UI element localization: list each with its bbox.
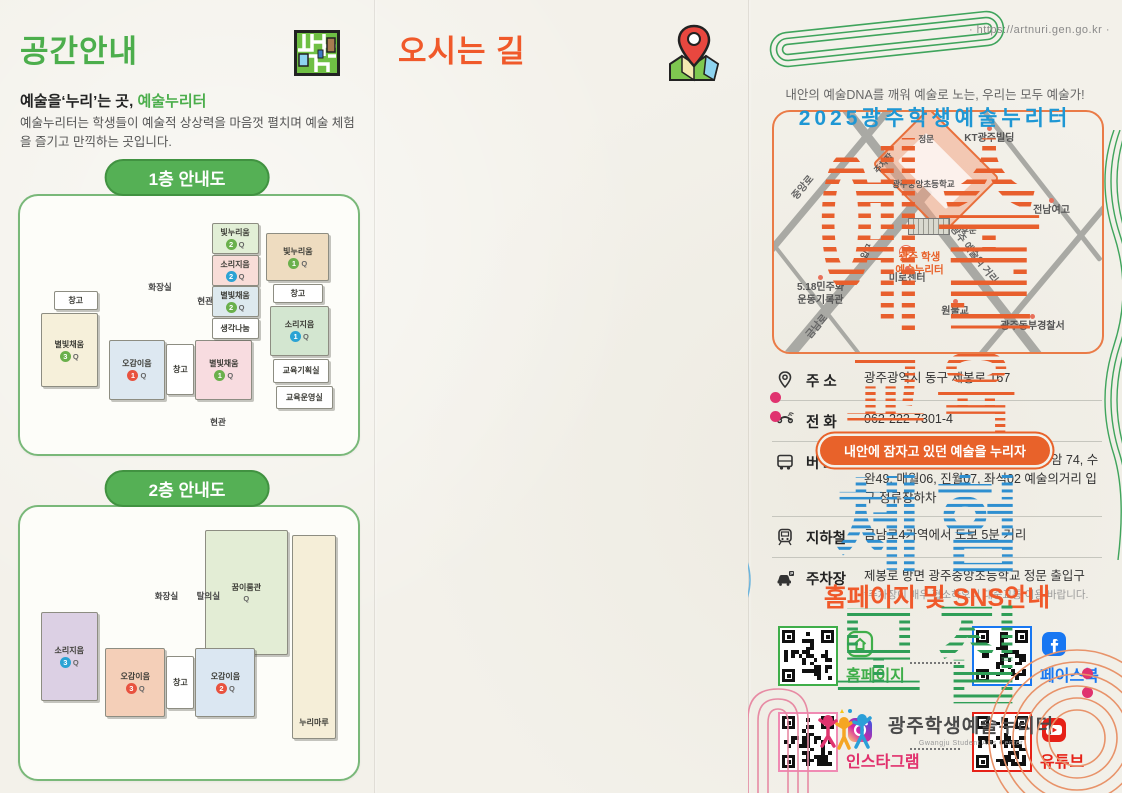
room-label: 현관 [210, 416, 226, 428]
decor-green-wave [1090, 130, 1122, 560]
magnifier-icon: Q [301, 259, 307, 268]
room-label: 창고 [173, 364, 188, 375]
magnifier-icon: Q [239, 240, 245, 249]
floor1-plan: 창고 별빛채움 3 Q 오감이음 1 Q [28, 204, 350, 446]
panel-space-guide: 공간안내 예술을‘누리’는 곳, 예술누리터 예술누리터는 학생들이 예술적 상… [0, 0, 374, 793]
floor-room: 화장실 [147, 587, 186, 605]
room-label: 창고 [68, 295, 83, 306]
directions-title: 오시는 길 [398, 26, 526, 71]
room-label: 꿈이룸관 [232, 582, 261, 593]
floor-room: 교육운영실 [276, 386, 333, 410]
room-label: 교육운영실 [286, 392, 323, 403]
floor-room: 오감이음 1 Q [109, 340, 166, 400]
room-label: 탈의실 [197, 590, 220, 602]
floor2-badge: 2층 안내도 [105, 470, 270, 507]
decor-pink-dots [770, 392, 782, 422]
room-meta: 2 Q [226, 239, 245, 250]
floor1-plan-card: 창고 별빛채움 3 Q 오감이음 1 Q [18, 194, 360, 456]
floor-room: 오감이음 3 Q [105, 648, 165, 717]
panel-directions: 오시는 길 KT광주빌딩 [374, 0, 748, 793]
room-number-badge: 1 [127, 370, 138, 381]
cover-ribbon: 내안에 잠자고 있던 예술을 누리자 [820, 436, 1050, 465]
decor-pink-arches [748, 653, 844, 793]
room-meta: 3 Q [60, 351, 79, 362]
room-label: 빛누리움 [220, 227, 249, 238]
room-label: 창고 [173, 677, 188, 688]
room-label: 소리지음 [220, 259, 249, 270]
floor-room: 화장실 [137, 279, 182, 296]
floor-room: 누리마루 [292, 535, 336, 739]
room-label: 소리지음 [55, 645, 84, 656]
magnifier-icon: Q [229, 684, 235, 693]
subtitle-prefix: 예술을‘누리’는 곳, [20, 93, 137, 110]
magnifier-icon: Q [227, 371, 233, 380]
room-label: 화장실 [148, 281, 171, 293]
room-label: 오감이음 [211, 671, 240, 682]
floor-room: 빛누리움 1 Q [266, 233, 329, 281]
space-guide-description: 예술누리터는 학생들이 예술적 상상력을 마음껏 펼치며 예술 체험을 즐기고 … [20, 114, 356, 153]
subtitle-accent: 예술누리터 [137, 93, 206, 110]
decor-orange-rings [982, 643, 1122, 793]
brochure-page: { "colors":{"green":"#4cae4c","orange":"… [0, 0, 1122, 793]
floor-room: 별빛채움 2 Q [212, 286, 259, 317]
room-label: 소리지음 [285, 319, 314, 330]
room-label: 현관 [197, 295, 213, 307]
map-pin-icon [664, 22, 724, 84]
room-number-badge: 2 [226, 239, 237, 250]
room-meta: 3 Q [126, 683, 145, 694]
floor-room: 창고 [166, 344, 194, 394]
magnifier-icon: Q [239, 272, 245, 281]
floor-room: 탈의실 [189, 587, 228, 605]
space-guide-title: 공간안내 [20, 26, 138, 71]
website-url: · https://artnuri.gen.go.kr · [969, 24, 1110, 36]
room-number-badge: 2 [226, 302, 237, 313]
floor1-badge: 1층 안내도 [105, 159, 270, 196]
floor2-plan: 꿈이룸관 Q 누리마루 화장실 탈의실 [28, 515, 350, 771]
panel-cover: · https://artnuri.gen.go.kr · 내안의 예술DNA를… [748, 0, 1122, 793]
floor-room: 빛누리움 2 Q [212, 223, 259, 254]
room-meta: 2 Q [226, 302, 245, 313]
room-label: 누리마루 [299, 717, 328, 728]
art-word-3: 체험 [835, 475, 1036, 607]
room-number-badge: 1 [290, 331, 301, 342]
room-meta: 2 Q [226, 271, 245, 282]
floor-room: 창고 [54, 291, 98, 310]
magnifier-icon: Q [73, 658, 79, 667]
room-meta: 3 Q [60, 657, 79, 668]
floor-room: 별빛채움 3 Q [41, 313, 98, 388]
room-number-badge: 1 [288, 258, 299, 269]
room-label: 생각나눔 [220, 323, 249, 334]
room-label: 교육기획실 [283, 365, 320, 376]
floor-room: 소리지음 2 Q [212, 255, 259, 286]
room-number-badge: 3 [126, 683, 137, 694]
room-meta: 1 Q [127, 370, 146, 381]
room-number-badge: 3 [60, 657, 71, 668]
room-label: 오감이음 [121, 671, 150, 682]
room-meta: Q [243, 594, 249, 603]
room-meta: 1 Q [288, 258, 307, 269]
room-meta: 2 Q [216, 683, 235, 694]
magnifier-icon: Q [139, 684, 145, 693]
floor-room: 현관 [205, 415, 231, 430]
floorplan-icon [294, 30, 340, 76]
magnifier-icon: Q [239, 303, 245, 312]
floor-room: 소리지음 1 Q [270, 306, 330, 356]
magnifier-icon: Q [303, 332, 309, 341]
room-label: 창고 [291, 288, 306, 299]
decor-green-loops [762, 8, 1012, 70]
cover-slogan: 내안의 예술DNA를 깨워 예술로 노는, 우리는 모두 예술가! [748, 84, 1122, 103]
room-number-badge: 3 [60, 351, 71, 362]
room-meta: 1 Q [214, 370, 233, 381]
magnifier-icon: Q [140, 371, 146, 380]
space-guide-subtitle: 예술을‘누리’는 곳, 예술누리터 [20, 90, 206, 111]
floor-room: 창고 [166, 656, 194, 709]
decor-blue-arc [748, 520, 788, 640]
cover-art-text: 예술 교육 내안에 잠자고 있던 예술을 누리자 체험 모집 [758, 132, 1112, 729]
room-label: 빛누리움 [283, 246, 312, 257]
room-label: 별빛채움 [55, 339, 84, 350]
floor-room: 소리지음 3 Q [41, 612, 98, 701]
floor-room: 생각나눔 [212, 318, 259, 339]
floor-room: 별빛채움 1 Q [195, 340, 252, 400]
room-number-badge: 1 [214, 370, 225, 381]
room-label: 오감이음 [122, 358, 151, 369]
floor2-plan-card: 꿈이룸관 Q 누리마루 화장실 탈의실 [18, 505, 360, 781]
floor-room: 오감이음 2 Q [195, 648, 255, 717]
room-label: 별빛채움 [209, 358, 238, 369]
room-label: 화장실 [155, 590, 178, 602]
magnifier-icon: Q [243, 594, 249, 603]
floor-room: 교육기획실 [273, 359, 330, 383]
room-number-badge: 2 [216, 683, 227, 694]
floor-room: 창고 [273, 284, 323, 303]
magnifier-icon: Q [73, 352, 79, 361]
room-number-badge: 2 [226, 271, 237, 282]
room-label: 별빛채움 [220, 290, 249, 301]
room-meta: 1 Q [290, 331, 309, 342]
